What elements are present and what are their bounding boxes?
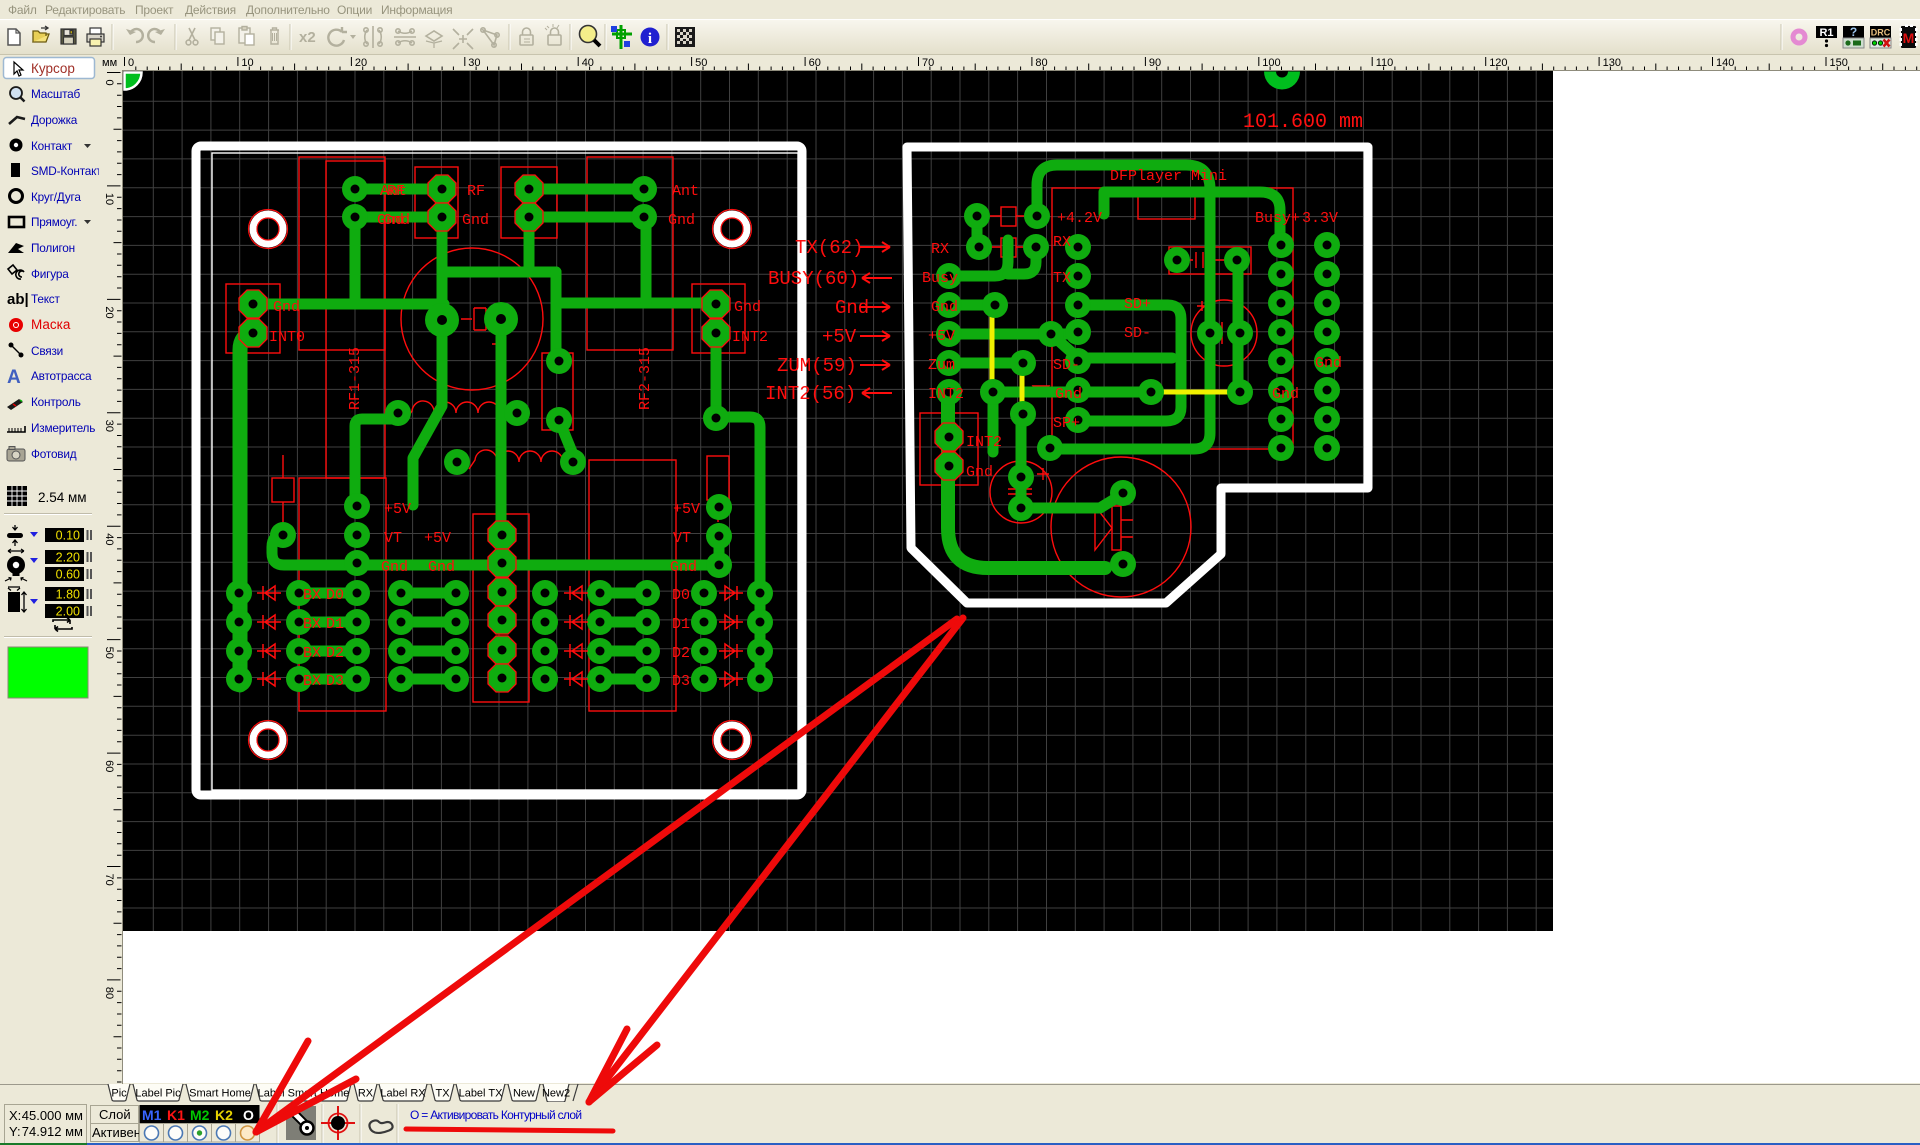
- svg-text:70: 70: [922, 57, 934, 69]
- svg-text:Маска: Маска: [31, 317, 71, 332]
- svg-text:100: 100: [1262, 57, 1280, 69]
- svg-text:+5V: +5V: [822, 326, 857, 348]
- svg-text:Gnd: Gnd: [670, 559, 697, 576]
- svg-text:K1: K1: [167, 1107, 185, 1123]
- svg-text:+5V: +5V: [424, 530, 451, 547]
- svg-text:i: i: [648, 31, 652, 47]
- svg-text:+5V: +5V: [928, 328, 955, 345]
- svg-text:90: 90: [1149, 57, 1161, 69]
- svg-text:D2: D2: [672, 645, 690, 662]
- svg-text:RX: RX: [1053, 234, 1071, 251]
- svg-text:RF1-315: RF1-315: [347, 347, 364, 410]
- svg-text:RF2-315: RF2-315: [637, 347, 654, 410]
- svg-text:Gnd: Gnd: [381, 559, 408, 576]
- svg-text:Слой: Слой: [99, 1107, 131, 1122]
- svg-text:SP+: SP+: [1053, 415, 1080, 432]
- svg-text:D0: D0: [326, 587, 344, 604]
- svg-text:0: 0: [128, 57, 134, 69]
- svg-text:Busy+: Busy+: [1255, 210, 1300, 227]
- svg-text:Gnd: Gnd: [1272, 386, 1299, 403]
- svg-text:SMD-Контакт: SMD-Контакт: [31, 164, 99, 178]
- svg-text:3.3V: 3.3V: [1302, 210, 1338, 227]
- svg-text:BX: BX: [303, 616, 321, 633]
- svg-text:RX: RX: [358, 1088, 374, 1100]
- svg-text:O: O: [243, 1107, 254, 1123]
- svg-text:мм: мм: [102, 57, 117, 69]
- svg-text:M1: M1: [142, 1107, 162, 1123]
- svg-text:SD-: SD-: [1124, 325, 1151, 342]
- svg-text:Gnd: Gnd: [966, 464, 993, 481]
- svg-text:M2: M2: [190, 1107, 210, 1123]
- svg-text:BX: BX: [303, 587, 321, 604]
- svg-text:+5V: +5V: [673, 501, 700, 518]
- svg-text:70: 70: [103, 874, 115, 886]
- svg-text:TX: TX: [435, 1088, 450, 1100]
- svg-text:O = Активировать Контурный сло: O = Активировать Контурный слой: [410, 1108, 581, 1122]
- svg-text:130: 130: [1603, 57, 1621, 69]
- svg-text:K2: K2: [215, 1107, 233, 1123]
- svg-text:Дорожка: Дорожка: [31, 113, 78, 127]
- svg-text:TX(62): TX(62): [795, 237, 863, 259]
- svg-text:Фигура: Фигура: [31, 267, 69, 281]
- svg-text:Label Smart Home: Label Smart Home: [258, 1088, 350, 1100]
- svg-text:Полигон: Полигон: [31, 241, 75, 255]
- svg-text:BUSY(60): BUSY(60): [768, 268, 859, 290]
- svg-text:D1: D1: [326, 616, 344, 633]
- svg-text:DFPlayer Mini: DFPlayer Mini: [1110, 168, 1227, 185]
- svg-text:BX: BX: [303, 673, 321, 690]
- svg-text:Gnd: Gnd: [462, 212, 489, 229]
- svg-text:INT0: INT0: [269, 329, 305, 346]
- svg-text:INT2: INT2: [966, 434, 1002, 451]
- svg-text:Pic: Pic: [111, 1088, 127, 1100]
- svg-text:Курсор: Курсор: [31, 61, 75, 76]
- svg-text:D3: D3: [326, 673, 344, 690]
- svg-text:2.00: 2.00: [56, 605, 80, 619]
- svg-text:Gnd: Gnd: [734, 299, 761, 316]
- svg-text:20: 20: [103, 306, 115, 318]
- svg-text:Измеритель: Измеритель: [31, 421, 95, 435]
- svg-text:Y:: Y:: [9, 1124, 21, 1139]
- svg-text:D2: D2: [326, 645, 344, 662]
- svg-text:SD+: SD+: [1124, 296, 1151, 313]
- svg-text:Фотовид: Фотовид: [31, 447, 77, 461]
- svg-text:TX: TX: [1053, 270, 1071, 287]
- svg-text:BX: BX: [303, 645, 321, 662]
- svg-text:Gnd: Gnd: [1315, 355, 1342, 372]
- svg-text:30: 30: [468, 57, 480, 69]
- svg-text:Gnd: Gnd: [931, 299, 958, 316]
- svg-text:2.54 мм: 2.54 мм: [38, 490, 87, 505]
- svg-text:120: 120: [1489, 57, 1507, 69]
- svg-text:RF: RF: [387, 183, 405, 200]
- svg-text:20: 20: [355, 57, 367, 69]
- svg-text:X:: X:: [9, 1108, 21, 1123]
- svg-text:RX: RX: [931, 241, 949, 258]
- svg-text:INT2: INT2: [732, 329, 768, 346]
- svg-text:Контроль: Контроль: [31, 395, 81, 409]
- svg-text:80: 80: [103, 987, 115, 999]
- svg-text:INT2(56): INT2(56): [765, 383, 856, 405]
- svg-text:40: 40: [103, 533, 115, 545]
- svg-text:50: 50: [103, 647, 115, 659]
- svg-text:Активен: Активен: [92, 1125, 141, 1140]
- svg-text:Контакт: Контакт: [31, 139, 73, 153]
- svg-text:110: 110: [1376, 57, 1394, 69]
- svg-text:Label RX: Label RX: [380, 1088, 426, 1100]
- svg-text:SD-: SD-: [1053, 357, 1080, 374]
- svg-text:Масштаб: Масштаб: [31, 87, 81, 101]
- svg-text:0.10: 0.10: [56, 529, 80, 543]
- svg-text:D3: D3: [672, 673, 690, 690]
- svg-text:D0: D0: [672, 587, 690, 604]
- svg-text:150: 150: [1830, 57, 1848, 69]
- svg-text:45.000 мм: 45.000 мм: [22, 1108, 83, 1123]
- svg-text:Label Pic: Label Pic: [135, 1088, 181, 1100]
- svg-text:50: 50: [695, 57, 707, 69]
- svg-text:40: 40: [582, 57, 594, 69]
- svg-text:Gnd: Gnd: [1055, 386, 1082, 403]
- svg-text:A: A: [7, 367, 21, 388]
- svg-text:Круг/Дуга: Круг/Дуга: [31, 190, 81, 204]
- svg-text:Zum: Zum: [928, 357, 955, 374]
- svg-text:x2: x2: [299, 29, 316, 46]
- svg-text:Smart Home: Smart Home: [189, 1088, 251, 1100]
- svg-text:INT2: INT2: [928, 386, 964, 403]
- svg-text:Label TX: Label TX: [459, 1088, 503, 1100]
- svg-text:60: 60: [103, 760, 115, 772]
- svg-text:DRC: DRC: [1871, 28, 1891, 38]
- svg-text:R1: R1: [1819, 27, 1833, 39]
- svg-text:VT: VT: [673, 530, 691, 547]
- svg-text:VT: VT: [384, 530, 402, 547]
- svg-text:30: 30: [103, 420, 115, 432]
- svg-text:M: M: [1903, 30, 1915, 46]
- svg-text:Gnd: Gnd: [273, 299, 300, 316]
- svg-text:ZUM(59): ZUM(59): [777, 355, 857, 377]
- svg-text:10: 10: [241, 57, 253, 69]
- svg-text:?: ?: [1850, 25, 1857, 39]
- svg-text:10: 10: [103, 193, 115, 205]
- svg-text:Текст: Текст: [31, 292, 60, 306]
- svg-text:2.20: 2.20: [56, 551, 80, 565]
- svg-text:Автотрасса: Автотрасса: [31, 369, 92, 383]
- svg-text:Gnd: Gnd: [383, 212, 410, 229]
- svg-text:+4.2V: +4.2V: [1057, 210, 1102, 227]
- svg-text:Busy: Busy: [922, 270, 958, 287]
- svg-text:RF: RF: [467, 183, 485, 200]
- svg-text:74.912 мм: 74.912 мм: [22, 1124, 83, 1139]
- svg-text:New: New: [513, 1088, 535, 1100]
- svg-text:ab|: ab|: [7, 291, 29, 308]
- svg-text:Связи: Связи: [31, 344, 63, 358]
- svg-text:60: 60: [809, 57, 821, 69]
- svg-text:D1: D1: [672, 616, 690, 633]
- svg-text:New2: New2: [542, 1088, 570, 1100]
- svg-text:80: 80: [1035, 57, 1047, 69]
- svg-text:1.80: 1.80: [56, 588, 80, 602]
- svg-text:0.60: 0.60: [56, 568, 80, 582]
- svg-text:140: 140: [1716, 57, 1734, 69]
- svg-text:Ant: Ant: [672, 183, 699, 200]
- svg-text:101.600 mm: 101.600 mm: [1243, 111, 1363, 134]
- svg-text:Gnd: Gnd: [668, 212, 695, 229]
- svg-text:Прямоуг.: Прямоуг.: [31, 215, 77, 229]
- svg-text:+5V: +5V: [384, 501, 411, 518]
- svg-text:0: 0: [103, 80, 115, 86]
- svg-text:Gnd: Gnd: [428, 559, 455, 576]
